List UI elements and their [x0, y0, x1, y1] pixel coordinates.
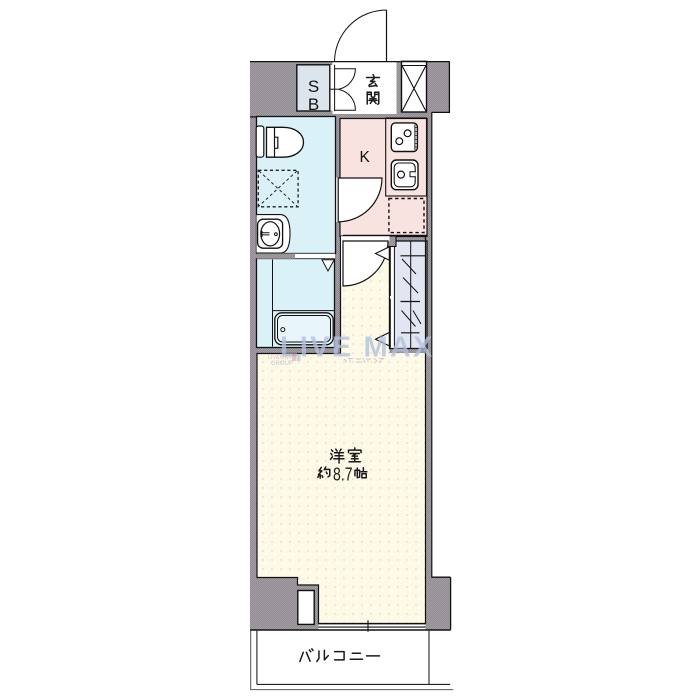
svg-text:B: B: [308, 95, 319, 114]
svg-text:K: K: [360, 149, 371, 166]
svg-text:8.7: 8.7: [333, 464, 353, 485]
svg-text:S: S: [308, 77, 319, 96]
svg-text:GROUP: GROUP: [271, 361, 293, 367]
